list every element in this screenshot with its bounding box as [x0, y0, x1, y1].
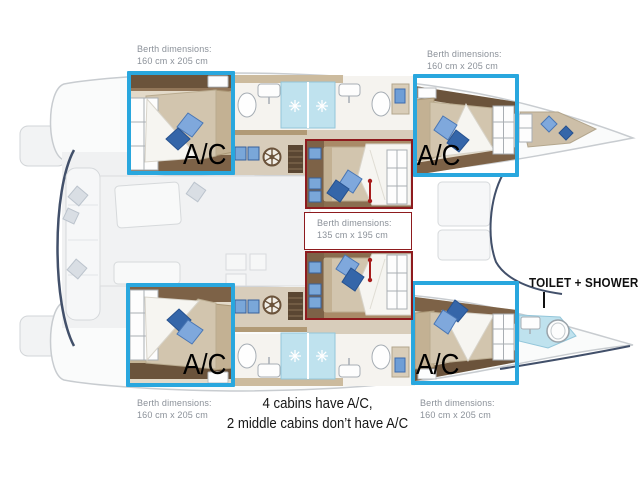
toilet-shower-label: TOILET + SHOWER [529, 276, 638, 290]
ac-label-bottom-right: A/C [416, 351, 460, 380]
middle-cabin-highlight-box-upper [305, 139, 413, 209]
catamaran-layout-diagram: A/C A/C A/C A/C Berth dimensions: 160 cm… [0, 0, 640, 479]
middle-cabin-highlight-box-lower [305, 251, 413, 320]
berth-dimensions-label-bottom-right: Berth dimensions: 160 cm x 205 cm [420, 398, 495, 422]
berth-dimensions-label-bottom-left: Berth dimensions: 160 cm x 205 cm [137, 398, 212, 422]
ac-label-top-left: A/C [183, 141, 227, 170]
toilet-shower-pointer-line [543, 292, 545, 308]
berth-dimensions-label-middle: Berth dimensions: 135 cm x 195 cm [317, 218, 406, 242]
berth-dimensions-box-middle: Berth dimensions: 135 cm x 195 cm [304, 212, 412, 250]
ac-label-bottom-left: A/C [183, 351, 227, 380]
ac-summary-caption: 4 cabins have A/C, 2 middle cabins don’t… [223, 394, 412, 433]
berth-dimensions-label-top-left: Berth dimensions: 160 cm x 205 cm [137, 44, 212, 68]
berth-dimensions-label-top-right: Berth dimensions: 160 cm x 205 cm [427, 49, 502, 73]
ac-label-top-right: A/C [417, 142, 461, 171]
